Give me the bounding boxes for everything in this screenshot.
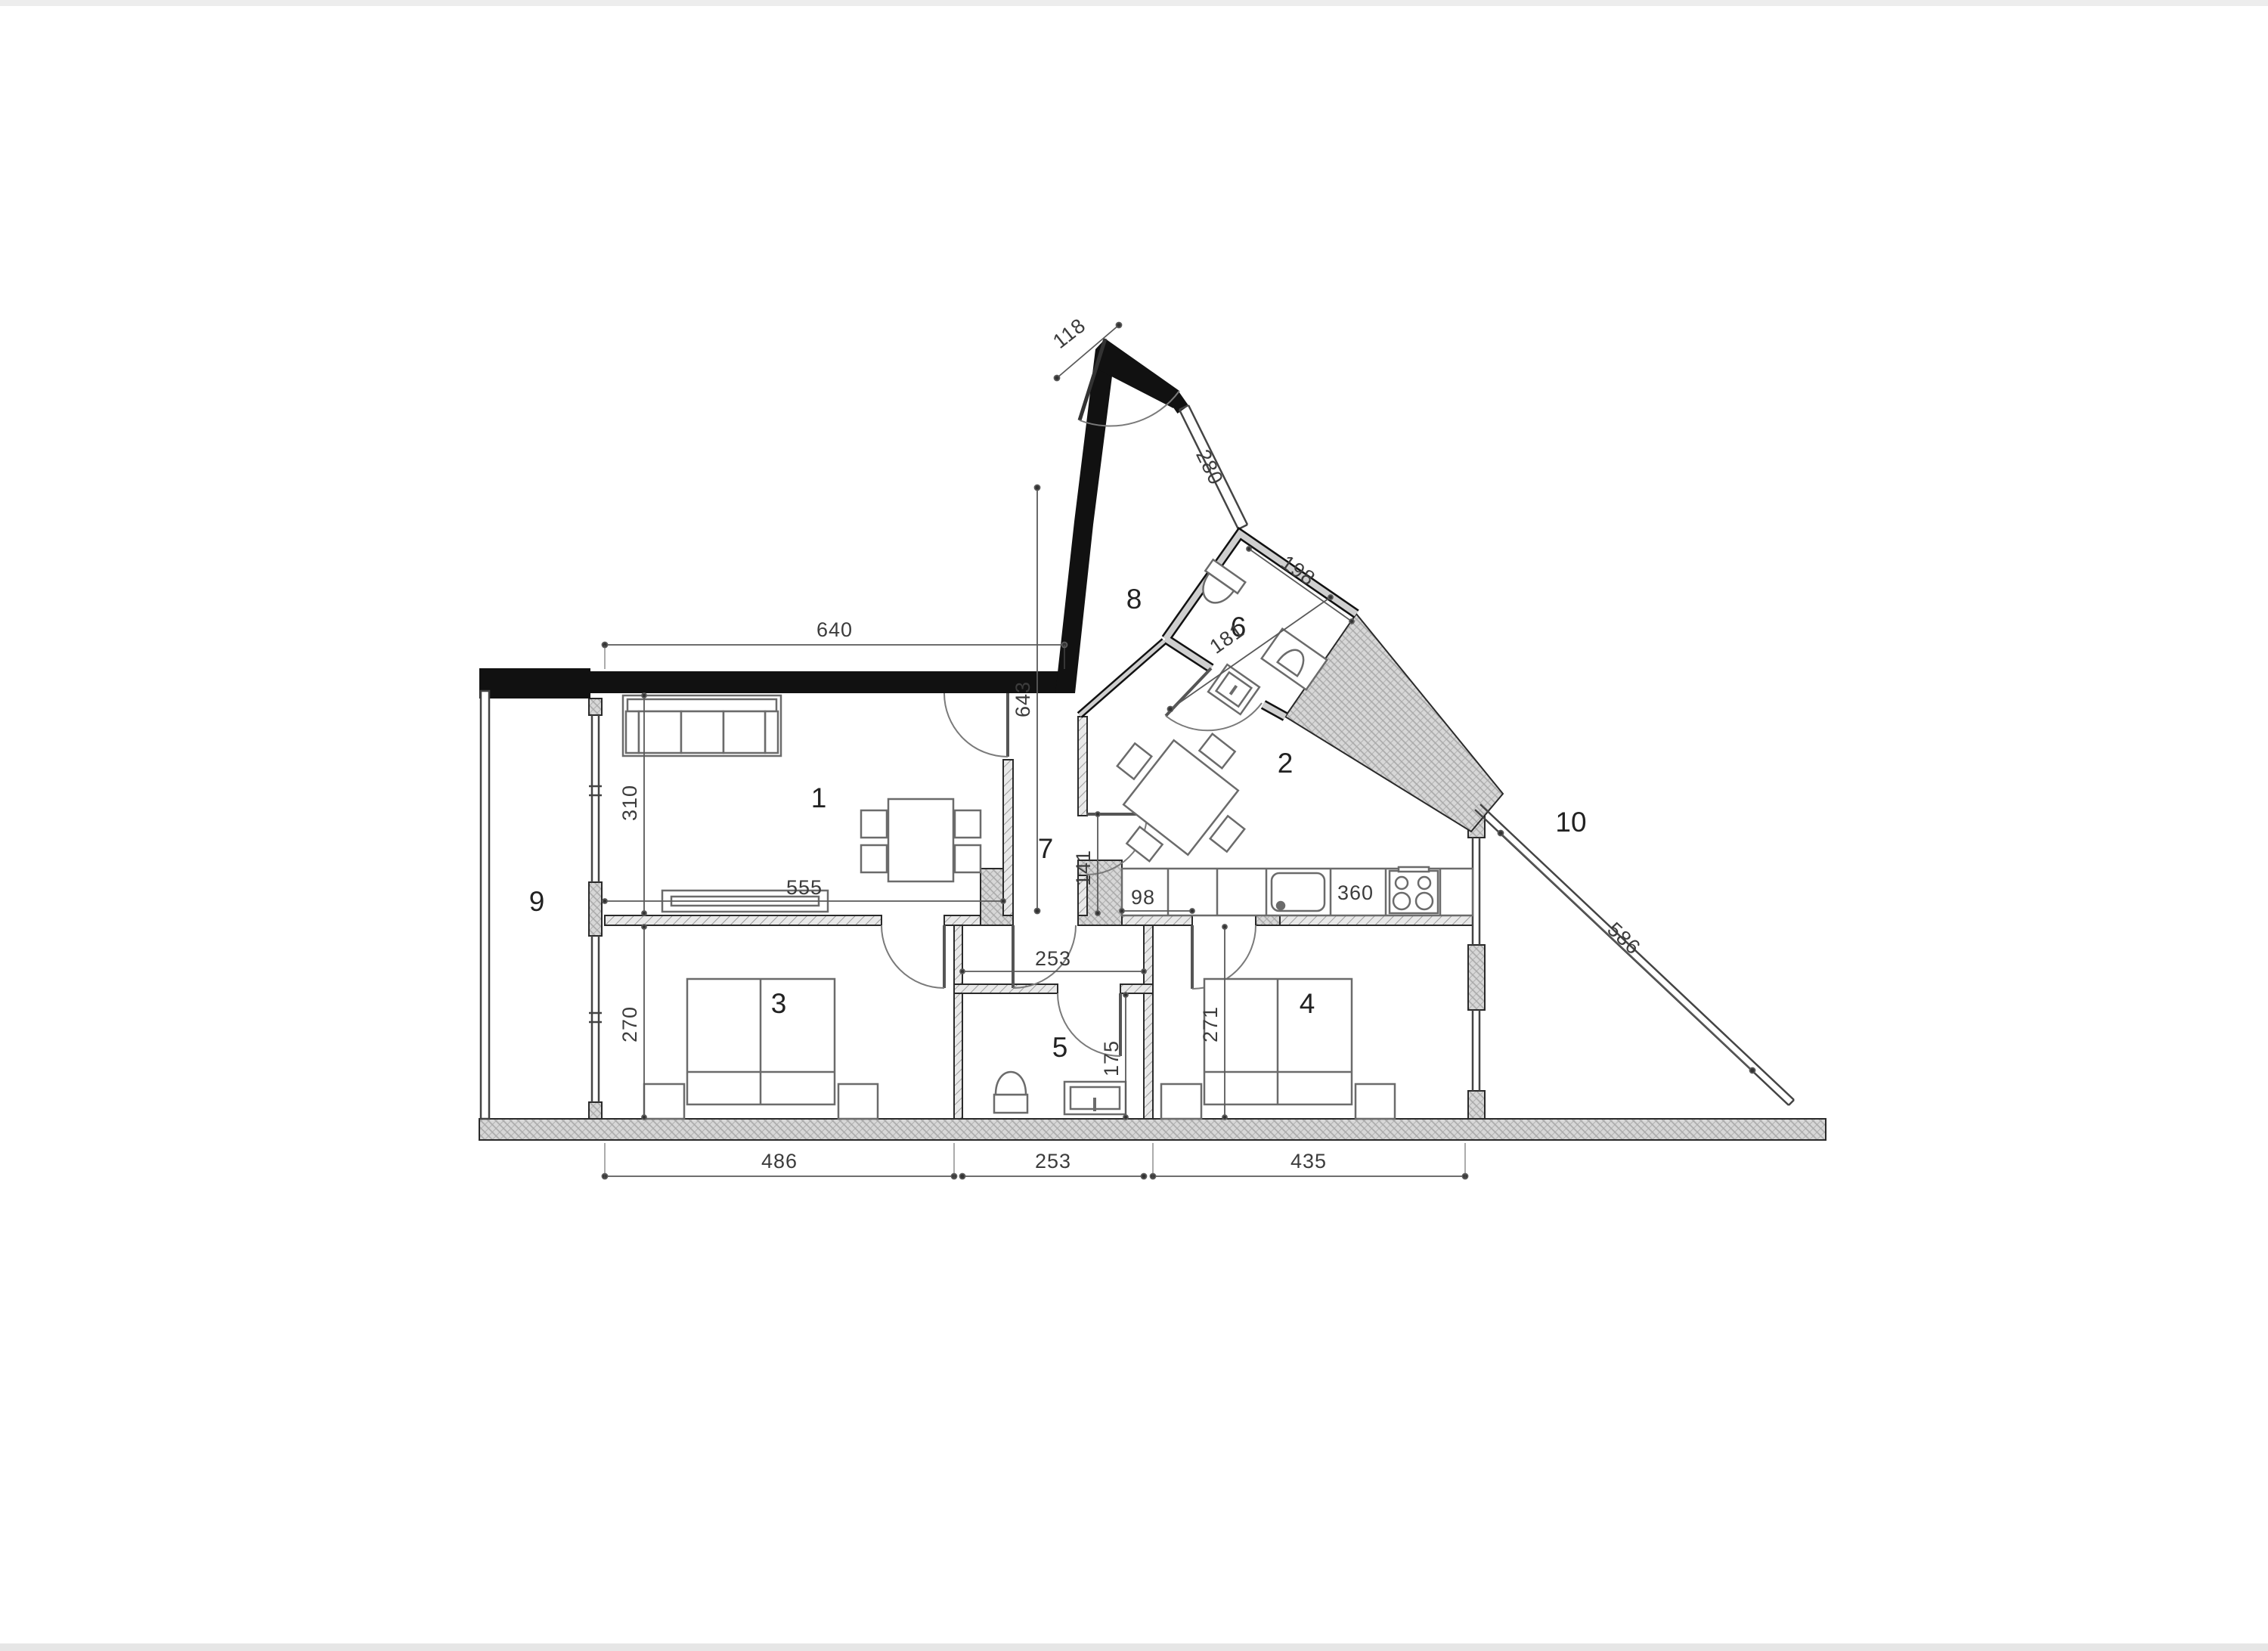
wall-balcony-top-block xyxy=(479,668,590,698)
terrace-edge xyxy=(1475,804,1794,1105)
dim-253-top: 253 xyxy=(1035,947,1071,970)
room-label-terrace: 10 xyxy=(1555,807,1586,838)
dining-table xyxy=(861,799,981,881)
room-label-entry: 8 xyxy=(1126,584,1142,615)
room-label-wc: 5 xyxy=(1052,1032,1068,1063)
bath-cabinet xyxy=(1208,664,1259,714)
dim-141: 141 xyxy=(1072,850,1095,886)
dim-555: 555 xyxy=(786,876,823,899)
dim-270: 270 xyxy=(618,1006,641,1042)
dim-360: 360 xyxy=(1337,881,1374,904)
bedroom-left-door xyxy=(881,925,944,988)
dim-486: 486 xyxy=(761,1150,798,1172)
balcony-parapet xyxy=(481,691,489,1119)
wc-sink xyxy=(1064,1082,1126,1114)
dim-253-bottom: 253 xyxy=(1035,1150,1071,1172)
kitchen-stove xyxy=(1390,867,1438,913)
dim-280: 280 xyxy=(1191,446,1228,488)
dim-175: 175 xyxy=(1100,1040,1123,1076)
dim-310: 310 xyxy=(618,785,641,821)
floor-plan-svg: 1 2 3 4 5 6 7 8 9 10 640 118 280 643 310… xyxy=(0,0,2268,1651)
room-label-bedroom-left: 3 xyxy=(771,988,787,1019)
sofa xyxy=(623,695,781,756)
room-label-hall: 7 xyxy=(1038,833,1054,864)
room-label-kitchen: 2 xyxy=(1278,748,1294,779)
dim-640: 640 xyxy=(816,618,853,641)
dim-643: 643 xyxy=(1012,681,1034,717)
doors xyxy=(881,339,1262,1056)
kitchen-sink xyxy=(1272,873,1325,911)
room-label-living: 1 xyxy=(811,782,827,813)
living-door xyxy=(944,693,1008,757)
page: 1 2 3 4 5 6 7 8 9 10 640 118 280 643 310… xyxy=(0,0,2268,1651)
dim-98: 98 xyxy=(1131,886,1155,909)
wc-toilet xyxy=(994,1072,1027,1113)
wall-bottom xyxy=(479,1119,1826,1140)
room-label-bedroom-right: 4 xyxy=(1300,988,1315,1019)
wall-top xyxy=(590,671,1064,693)
bed-right xyxy=(1161,979,1395,1119)
bed-left xyxy=(644,979,878,1119)
dim-435: 435 xyxy=(1290,1150,1327,1172)
dim-271: 271 xyxy=(1199,1006,1222,1042)
wall-band-diagonal xyxy=(1285,614,1503,832)
room-label-balcony: 9 xyxy=(529,886,545,917)
dim-118: 118 xyxy=(1049,314,1090,353)
